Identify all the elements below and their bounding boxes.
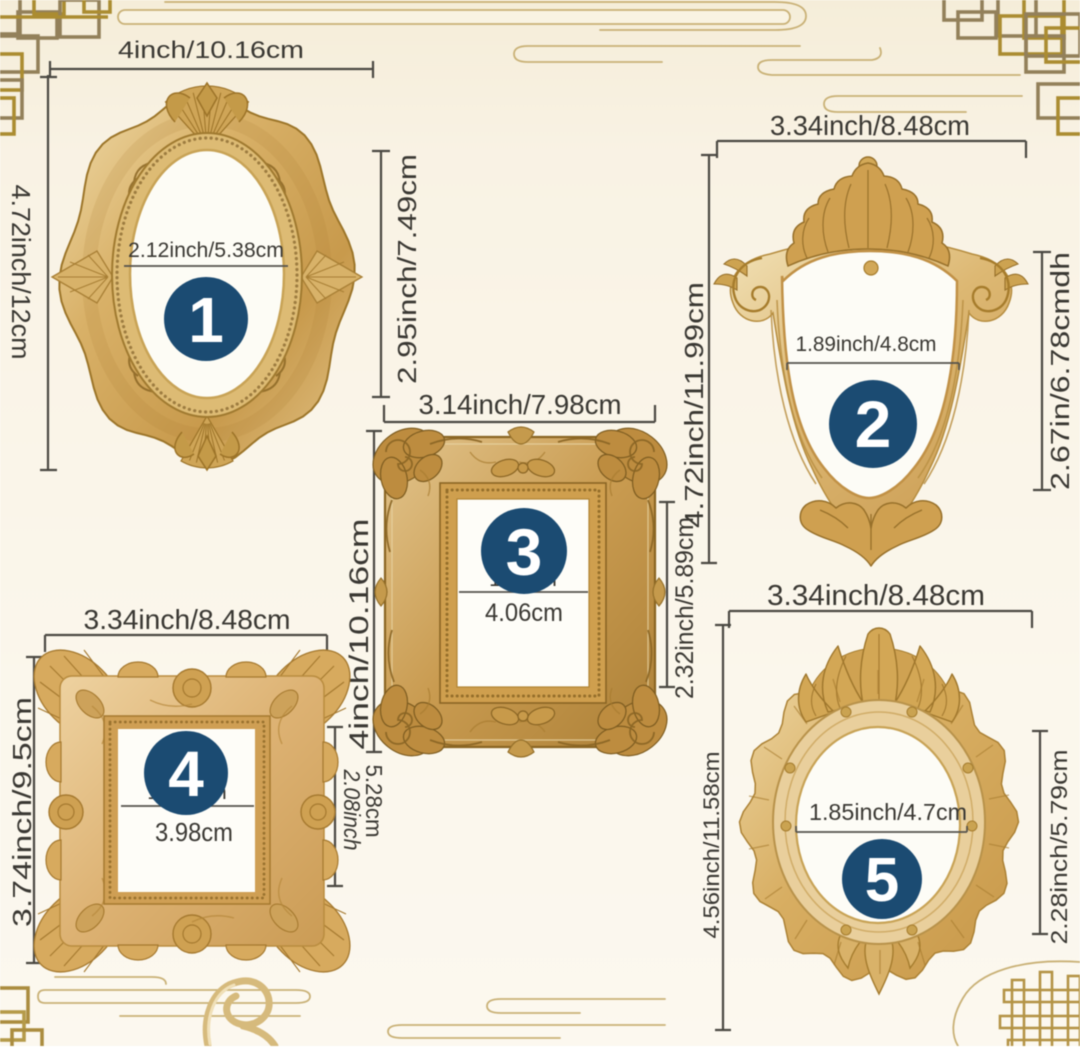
svg-text:3.98cm: 3.98cm (155, 817, 233, 847)
svg-text:3.34inch/8.48cm: 3.34inch/8.48cm (767, 580, 985, 612)
svg-text:2.95inch/7.49cm: 2.95inch/7.49cm (392, 154, 422, 384)
svg-text:4inch/10.16cm: 4inch/10.16cm (344, 519, 374, 750)
svg-text:4: 4 (168, 738, 204, 810)
svg-text:1.89inch/4.8cm: 1.89inch/4.8cm (796, 333, 937, 356)
svg-text:5: 5 (865, 846, 899, 915)
svg-text:4.56inch/11.58cm: 4.56inch/11.58cm (699, 752, 724, 939)
svg-text:4inch/10.16cm: 4inch/10.16cm (118, 37, 304, 64)
svg-text:2.32inch/5.89cm: 2.32inch/5.89cm (671, 517, 699, 699)
svg-text:3.74inch/9.5cm: 3.74inch/9.5cm (7, 697, 37, 927)
svg-text:2.08inch: 2.08inch (339, 769, 365, 851)
svg-text:2.67in/6.78cmdh: 2.67in/6.78cmdh (1045, 252, 1075, 490)
svg-text:4.72inch/11.99cm: 4.72inch/11.99cm (679, 282, 709, 528)
svg-text:4.06cm: 4.06cm (485, 599, 563, 627)
svg-text:3: 3 (506, 515, 543, 589)
svg-text:2: 2 (855, 387, 892, 461)
svg-text:3.14inch/7.98cm: 3.14inch/7.98cm (419, 389, 622, 420)
svg-text:3.34inch/8.48cm: 3.34inch/8.48cm (770, 110, 970, 141)
svg-text:2.12inch/5.38cm: 2.12inch/5.38cm (128, 239, 284, 262)
svg-text:1: 1 (188, 284, 224, 356)
svg-text:2.28inch/5.79cm: 2.28inch/5.79cm (1046, 750, 1072, 945)
svg-text:4.72inch/12cm: 4.72inch/12cm (6, 185, 36, 360)
svg-text:1.85inch/4.7cm: 1.85inch/4.7cm (809, 799, 967, 825)
svg-text:3.34inch/8.48cm: 3.34inch/8.48cm (84, 604, 291, 635)
